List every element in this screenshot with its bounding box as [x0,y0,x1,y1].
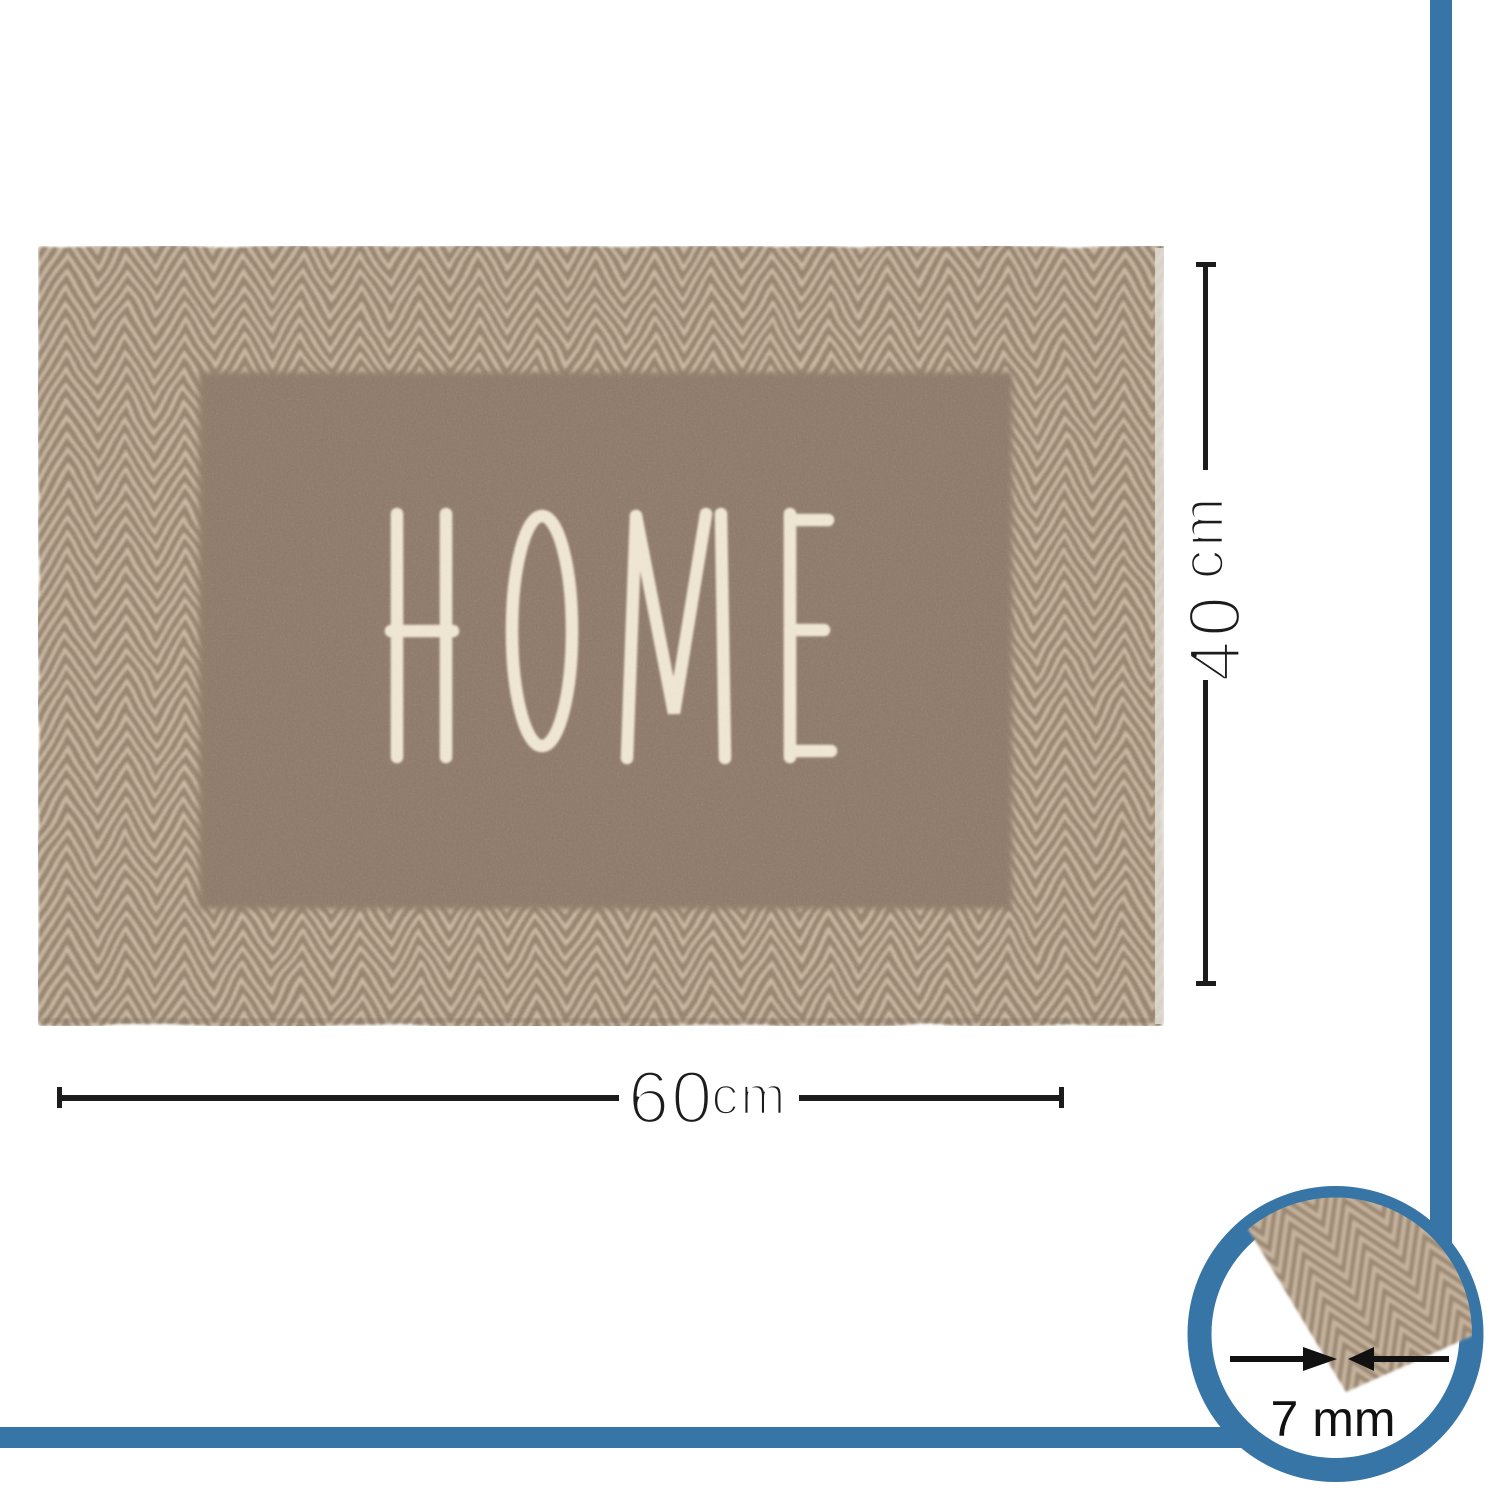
svg-text:7 mm: 7 mm [1271,1391,1396,1447]
svg-text:60cm: 60cm [628,1056,787,1139]
svg-text:40cm: 40cm [1170,495,1256,682]
